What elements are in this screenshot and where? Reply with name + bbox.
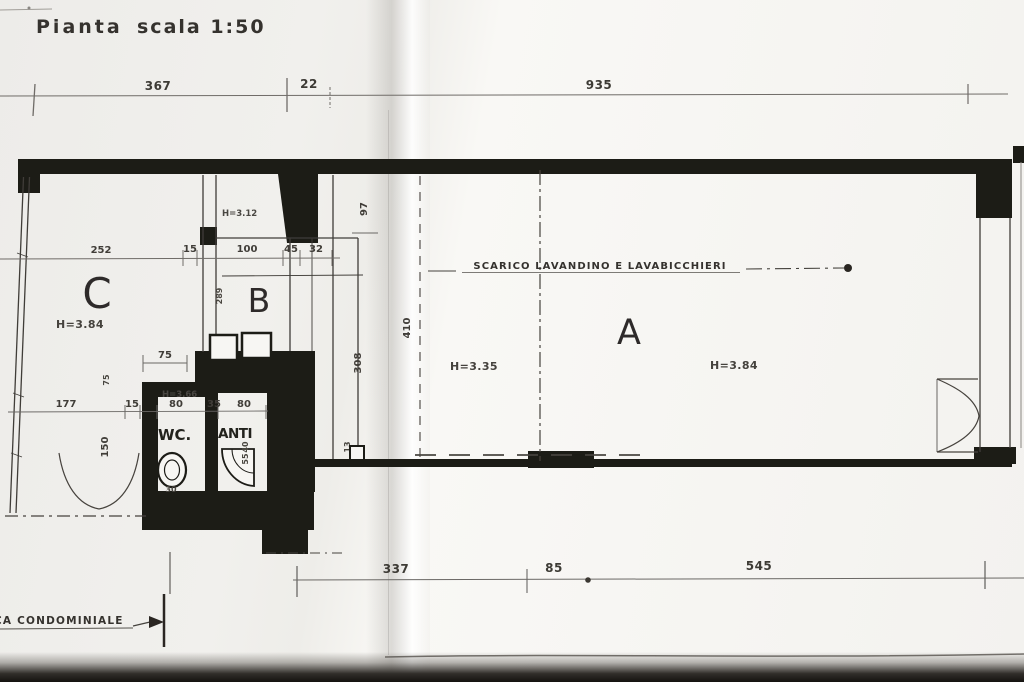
dim-32: 32 [309, 244, 323, 255]
dim-100: 100 [237, 244, 258, 255]
height-shaft: H=3.12 [222, 209, 257, 219]
toilet [158, 453, 186, 487]
dim-75-side: 75 [102, 374, 111, 386]
height-room-a-left: H=3.35 [450, 360, 498, 373]
drain-annotation: SCARICO LAVANDINO E LAVABICCHIERI [428, 261, 852, 273]
sink-unit-2 [242, 333, 271, 358]
door-a-arc-top [937, 379, 979, 416]
condominium-annotation: CA CONDOMINIALE [0, 594, 164, 647]
dim-289: 289 [215, 287, 224, 304]
dim-45: 45 [284, 244, 298, 255]
dim-97: 97 [359, 202, 370, 216]
height-room-c: H=3.84 [56, 318, 104, 331]
paper-bottom-edge [385, 654, 1024, 657]
dim-wc-15: 15 [125, 399, 139, 410]
drain-endpoint-dot [844, 264, 852, 272]
room-a-label: A [617, 313, 641, 353]
dim-150: 150 [100, 437, 111, 458]
height-room-a-right: H=3.84 [710, 359, 758, 372]
wall-top-right-pier [976, 161, 1012, 218]
wall-shaft [278, 174, 318, 243]
dim-252: 252 [91, 245, 112, 256]
drain-note-text: SCARICO LAVANDINO E LAVABICCHIERI [473, 261, 726, 272]
wall-wc-right [267, 351, 315, 492]
dim-308: 308 [353, 353, 364, 374]
door-c-leaf-right [99, 453, 139, 509]
door-c-leaf-left [59, 453, 99, 509]
scan-artifacts [0, 7, 52, 11]
threshold-marker [350, 446, 364, 460]
floor-plan-drawing: Pianta scala 1:50 367 22 935 [0, 0, 1024, 682]
scanned-floor-plan-page: Pianta scala 1:50 367 22 935 [0, 0, 1024, 682]
upper-interior-dimension-line: 252 15 100 45 32 [0, 244, 340, 266]
room-b-label: B [248, 281, 271, 320]
top-dimension-line: 367 22 935 [0, 77, 1008, 116]
dim-40: 40 [241, 441, 250, 453]
dim-15: 15 [183, 244, 197, 255]
dim-85: 85 [545, 561, 563, 575]
sink-unit-1 [210, 335, 237, 360]
dim-545: 545 [746, 559, 773, 573]
plan-title: Pianta scala 1:50 [36, 16, 266, 38]
wall-c-left-outer [10, 177, 24, 513]
dim-wc-35: 35 [207, 399, 221, 410]
wall-a-bottom [312, 459, 1012, 467]
bottom-dimension-line: 337 85 545 [293, 559, 1024, 597]
room-anti-label: ANTI [218, 426, 252, 442]
arrowhead [149, 616, 164, 628]
condominium-note-text: CA CONDOMINIALE [0, 615, 124, 627]
dim-177: 177 [56, 399, 77, 410]
wc-dimension-line: 177 15 80 35 80 [8, 399, 268, 419]
wall-wc-left [142, 382, 158, 508]
wall-edge-mark [1013, 146, 1024, 163]
scale-text: scala 1:50 [137, 16, 266, 38]
title-text: Pianta [36, 16, 123, 38]
dim-410: 410 [402, 318, 413, 339]
dim-wc-80a: 80 [169, 399, 183, 410]
dim-55: 55 [241, 453, 250, 465]
dim-337: 337 [383, 562, 410, 576]
door-a-arc-bottom [937, 416, 979, 452]
wall-top [18, 159, 1012, 174]
height-room-wc: H=3.66 [162, 390, 197, 400]
dim-75-top: 75 [158, 350, 172, 361]
dim-22: 22 [300, 77, 318, 91]
wall-c-left-inner [16, 177, 30, 513]
room-c-label: C [82, 269, 111, 318]
wall-a-bottom-thick [528, 451, 594, 468]
dim-wc-80b: 80 [237, 399, 251, 410]
dim-367: 367 [145, 79, 172, 93]
wall-wc-bottom-right [262, 491, 308, 554]
dashed-lines [5, 170, 640, 594]
height-annotations: H=3.84 H=3.12 H=3.66 H=3.35 H=3.84 [56, 209, 758, 400]
dim-935: 935 [586, 78, 613, 92]
room-wc-label: WC. [158, 426, 191, 444]
dim-30: 30 [165, 485, 177, 494]
